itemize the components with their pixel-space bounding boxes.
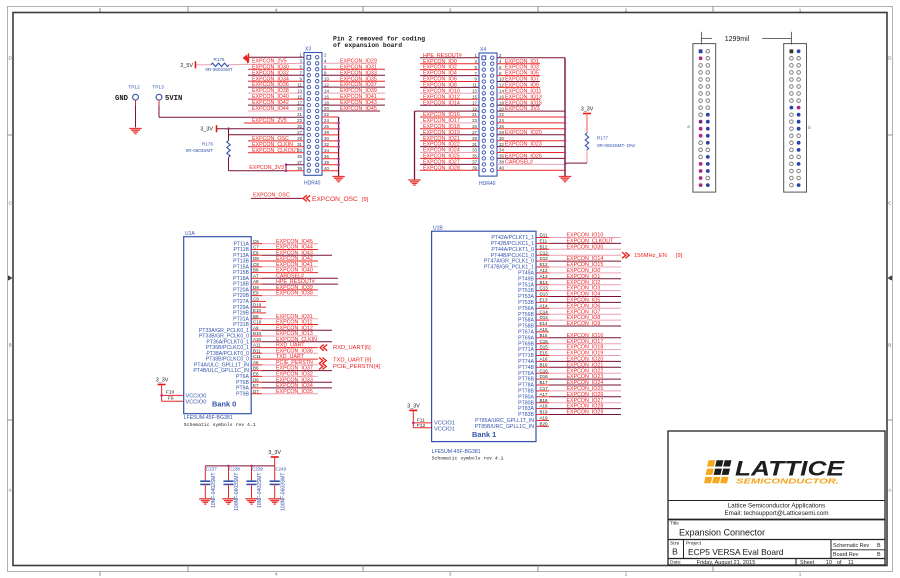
svg-text:32: 32 — [499, 142, 504, 147]
svg-text:A19: A19 — [540, 416, 549, 421]
svg-text:25: 25 — [472, 124, 477, 129]
svg-text:23: 23 — [472, 118, 477, 123]
svg-text:19: 19 — [297, 106, 302, 111]
svg-text:Expansion Connector: Expansion Connector — [679, 527, 765, 537]
svg-text:1: 1 — [799, 572, 802, 577]
svg-text:E8: E8 — [253, 250, 259, 255]
svg-text:18: 18 — [324, 100, 329, 105]
svg-text:3_3V: 3_3V — [581, 107, 594, 113]
svg-text:Board Rev: Board Rev — [833, 552, 859, 558]
svg-text:0R-0603SMT: 0R-0603SMT — [186, 148, 214, 153]
svg-text:22: 22 — [324, 112, 329, 117]
svg-text:3_3V: 3_3V — [200, 127, 213, 133]
svg-text:C240: C240 — [275, 467, 286, 472]
svg-text:3_3V: 3_3V — [407, 404, 420, 410]
svg-text:EXPCON_OSC: EXPCON_OSC — [312, 196, 358, 203]
svg-text:31: 31 — [297, 142, 302, 147]
svg-text:10: 10 — [826, 560, 832, 566]
svg-text:A9: A9 — [253, 325, 259, 330]
svg-text:C15: C15 — [540, 339, 549, 344]
svg-text:100NF-0603SMT: 100NF-0603SMT — [234, 473, 240, 511]
svg-text:D7: D7 — [253, 389, 259, 394]
svg-text:A10: A10 — [253, 337, 262, 342]
svg-text:of expansion board: of expansion board — [333, 42, 402, 49]
svg-text:B: B — [877, 543, 881, 549]
svg-text:28: 28 — [324, 130, 329, 135]
svg-text:B19: B19 — [540, 410, 549, 415]
svg-text:A6: A6 — [253, 360, 259, 365]
svg-text:Schematic symbols rev 4.1: Schematic symbols rev 4.1 — [432, 455, 504, 461]
svg-text:28: 28 — [499, 130, 504, 135]
svg-text:19: 19 — [472, 106, 477, 111]
svg-text:B8: B8 — [253, 268, 259, 273]
svg-text:21: 21 — [472, 112, 477, 117]
svg-text:E10: E10 — [253, 308, 262, 313]
svg-text:A17: A17 — [540, 392, 549, 397]
svg-text:3_3V: 3_3V — [156, 378, 169, 384]
svg-text:Schematic Rev: Schematic Rev — [833, 543, 870, 549]
svg-text:EXPCON_IO9: EXPCON_IO9 — [567, 321, 601, 327]
svg-text:EXPCON_IO28: EXPCON_IO28 — [423, 165, 460, 171]
svg-text:EXPCON_IO20: EXPCON_IO20 — [505, 130, 542, 136]
svg-text:Bank 0: Bank 0 — [212, 400, 236, 409]
svg-text:LATTICE: LATTICE — [735, 457, 845, 480]
svg-text:EXPCON_2V5: EXPCON_2V5 — [252, 118, 287, 124]
svg-text:[6]: [6] — [365, 345, 372, 351]
svg-text:156MHz_EN: 156MHz_EN — [634, 253, 667, 259]
svg-text:Friday, August 21, 2015: Friday, August 21, 2015 — [697, 560, 756, 566]
svg-text:ECP5 VERSA Eval Board: ECP5 VERSA Eval Board — [688, 547, 784, 557]
svg-text:of: of — [837, 560, 842, 566]
svg-text:31: 31 — [472, 142, 477, 147]
svg-text:Title: Title — [670, 521, 679, 527]
svg-text:B16: B16 — [540, 362, 549, 367]
svg-text:U1A: U1A — [185, 231, 195, 237]
svg-text:27: 27 — [472, 130, 477, 135]
svg-text:11: 11 — [848, 560, 854, 566]
svg-text:VCCIO1: VCCIO1 — [434, 427, 455, 433]
svg-text:3: 3 — [449, 572, 452, 577]
svg-text:40: 40 — [499, 166, 504, 171]
svg-text:C10: C10 — [253, 320, 262, 325]
svg-text:B10: B10 — [253, 331, 262, 336]
svg-text:TP13: TP13 — [152, 85, 164, 91]
svg-text:2: 2 — [625, 7, 628, 12]
svg-text:D14: D14 — [540, 315, 549, 320]
svg-text:VCCIO0: VCCIO0 — [186, 399, 207, 405]
svg-text:11: 11 — [472, 83, 477, 88]
svg-text:20: 20 — [324, 106, 329, 111]
svg-text:B11: B11 — [253, 348, 261, 353]
svg-text:B12: B12 — [540, 244, 549, 249]
svg-text:17: 17 — [472, 100, 477, 105]
svg-text:PCIE_PERSTN: PCIE_PERSTN — [333, 364, 373, 370]
svg-text:Sheet: Sheet — [800, 560, 815, 566]
svg-text:EXPCON_IO23: EXPCON_IO23 — [505, 142, 542, 148]
svg-text:12: 12 — [499, 83, 504, 88]
svg-text:5: 5 — [99, 572, 102, 577]
svg-text:30: 30 — [499, 136, 504, 141]
svg-text:B: B — [9, 343, 12, 348]
svg-text:PT85B/URC_GPLL1C_IN: PT85B/URC_GPLL1C_IN — [475, 424, 535, 430]
svg-text:CARDSEL#: CARDSEL# — [505, 160, 533, 166]
svg-text:EXPCON_2V5: EXPCON_2V5 — [252, 58, 287, 64]
svg-text:24: 24 — [499, 118, 504, 123]
svg-text:D9: D9 — [253, 285, 259, 290]
svg-text:24: 24 — [324, 118, 329, 123]
svg-text:X4: X4 — [480, 47, 486, 53]
svg-text:39: 39 — [297, 166, 302, 171]
svg-text:EXPCON_IO45: EXPCON_IO45 — [340, 106, 377, 112]
svg-text:29: 29 — [297, 136, 302, 141]
svg-text:C238: C238 — [229, 467, 240, 472]
svg-text:Email: techsupport@Latticesemi: Email: techsupport@Latticesemi.com — [724, 510, 828, 517]
svg-text:36: 36 — [499, 154, 504, 159]
svg-text:F10: F10 — [166, 390, 175, 396]
svg-text:A12: A12 — [540, 268, 549, 273]
svg-text:13: 13 — [297, 88, 302, 93]
svg-text:14: 14 — [499, 89, 504, 94]
svg-text:15: 15 — [297, 94, 302, 99]
svg-text:10: 10 — [499, 77, 504, 82]
svg-text:20: 20 — [499, 106, 504, 111]
svg-text:Bank 1: Bank 1 — [472, 430, 496, 439]
svg-text:D12: D12 — [540, 256, 549, 261]
svg-text:A11: A11 — [253, 343, 261, 348]
svg-text:C9: C9 — [253, 297, 259, 302]
svg-text:12: 12 — [324, 82, 329, 87]
svg-text:LFE5UM-45F-BG381: LFE5UM-45F-BG381 — [432, 449, 481, 455]
svg-text:[9]: [9] — [676, 253, 683, 259]
svg-text:EXPCON_3V3: EXPCON_3V3 — [505, 106, 540, 112]
svg-text:[9]: [9] — [362, 197, 369, 203]
svg-text:32: 32 — [324, 142, 329, 147]
svg-text:HDR40: HDR40 — [479, 181, 496, 187]
svg-text:2_5V: 2_5V — [180, 63, 193, 69]
svg-text:E9: E9 — [253, 291, 259, 296]
svg-text:5VIN: 5VIN — [165, 95, 182, 103]
svg-text:38: 38 — [324, 160, 329, 165]
svg-text:40: 40 — [324, 166, 329, 171]
svg-text:F12: F12 — [417, 423, 426, 429]
svg-text:A13: A13 — [540, 274, 549, 279]
svg-text:C14: C14 — [540, 309, 549, 314]
svg-text:B: B — [888, 343, 891, 348]
svg-text:F9: F9 — [168, 396, 174, 402]
svg-text:C13: C13 — [540, 286, 549, 291]
svg-text:100NF-0603SMT: 100NF-0603SMT — [280, 473, 286, 511]
svg-text:38: 38 — [499, 160, 504, 165]
svg-text:D8: D8 — [253, 256, 259, 261]
svg-text:16: 16 — [499, 94, 504, 99]
svg-text:D11: D11 — [540, 233, 548, 238]
svg-text:EXPCON_OSC: EXPCON_OSC — [253, 192, 290, 198]
svg-text:11: 11 — [297, 82, 302, 87]
svg-text:B9: B9 — [253, 314, 259, 319]
svg-text:EXPCON_IO38: EXPCON_IO38 — [276, 291, 313, 297]
svg-text:B6: B6 — [253, 366, 259, 371]
svg-text:B13: B13 — [540, 280, 549, 285]
svg-text:RXD_UART: RXD_UART — [333, 345, 365, 351]
svg-text:EXPCON_3V3: EXPCON_3V3 — [249, 165, 284, 171]
svg-text:SEMICONDUCTOR.: SEMICONDUCTOR. — [736, 478, 839, 485]
svg-text:A8: A8 — [253, 279, 259, 284]
svg-text:EXPCON_CLKOUT: EXPCON_CLKOUT — [252, 148, 300, 154]
svg-text:22: 22 — [499, 112, 504, 117]
svg-text:10NF-0402SMT: 10NF-0402SMT — [257, 473, 263, 509]
svg-text:E15: E15 — [540, 351, 549, 356]
svg-text:5: 5 — [99, 7, 102, 12]
svg-text:18: 18 — [499, 100, 504, 105]
svg-text:HDR40: HDR40 — [304, 180, 321, 186]
svg-text:EXPCON_IO29: EXPCON_IO29 — [567, 410, 604, 416]
svg-text:3: 3 — [449, 7, 452, 12]
svg-text:E11: E11 — [540, 239, 548, 244]
svg-text:26: 26 — [324, 124, 329, 129]
svg-text:B: B — [877, 552, 881, 558]
svg-text:36: 36 — [324, 154, 329, 159]
svg-text:30: 30 — [324, 136, 329, 141]
svg-text:GND: GND — [115, 95, 129, 103]
svg-text:C17: C17 — [540, 386, 549, 391]
svg-text:4: 4 — [275, 572, 278, 577]
svg-text:Project: Project — [686, 540, 702, 546]
svg-text:C237: C237 — [206, 467, 217, 472]
svg-text:34: 34 — [324, 148, 329, 153]
svg-text:B15: B15 — [540, 333, 549, 338]
svg-text:15: 15 — [472, 94, 477, 99]
svg-text:[4]: [4] — [374, 364, 381, 370]
svg-text:C239: C239 — [252, 467, 263, 472]
svg-text:D15: D15 — [540, 345, 549, 350]
svg-text:R176: R176 — [202, 141, 213, 146]
svg-text:R177: R177 — [597, 136, 608, 141]
svg-text:13: 13 — [472, 89, 477, 94]
svg-text:E13: E13 — [540, 298, 549, 303]
svg-text:TP12: TP12 — [128, 85, 140, 91]
svg-text:EXPCON_IO30: EXPCON_IO30 — [567, 244, 604, 250]
svg-text:D10: D10 — [253, 302, 262, 307]
svg-text:TXD_UART: TXD_UART — [333, 358, 364, 364]
svg-text:0R-0603SMT: 0R-0603SMT — [205, 67, 233, 72]
svg-text:B18: B18 — [540, 398, 549, 403]
svg-text:D16: D16 — [540, 374, 549, 379]
svg-text:PT9B: PT9B — [236, 391, 250, 397]
svg-text:B: B — [672, 546, 678, 556]
svg-text:C11: C11 — [253, 354, 261, 359]
svg-text:EXPCON_IO35: EXPCON_IO35 — [276, 389, 313, 395]
svg-text:F11: F11 — [417, 418, 425, 424]
svg-text:B20: B20 — [540, 421, 549, 426]
svg-text:C7: C7 — [253, 245, 259, 250]
svg-text:4: 4 — [275, 7, 278, 12]
svg-text:26: 26 — [499, 124, 504, 129]
svg-text:37: 37 — [472, 160, 477, 165]
svg-text:3_3V: 3_3V — [268, 450, 281, 456]
svg-text:C8: C8 — [253, 262, 259, 267]
svg-text:Date:: Date: — [670, 560, 681, 566]
svg-text:14: 14 — [324, 88, 329, 93]
svg-text:10: 10 — [324, 76, 329, 81]
svg-text:1: 1 — [799, 7, 802, 12]
svg-text:C6: C6 — [253, 239, 259, 244]
svg-text:EXPCON_IO14: EXPCON_IO14 — [423, 100, 460, 106]
svg-text:29: 29 — [472, 136, 477, 141]
svg-text:35: 35 — [472, 154, 477, 159]
svg-text:0R-0603SMT- DNI: 0R-0603SMT- DNI — [597, 143, 635, 148]
svg-text:D13: D13 — [540, 292, 549, 297]
svg-text:16: 16 — [324, 94, 329, 99]
svg-text:E12: E12 — [540, 262, 549, 267]
svg-text:LFE5UM-45F-BG381: LFE5UM-45F-BG381 — [184, 415, 233, 421]
svg-text:A18: A18 — [540, 404, 549, 409]
svg-text:B17: B17 — [540, 380, 549, 385]
svg-text:U1B: U1B — [433, 225, 443, 231]
svg-text:E6: E6 — [253, 372, 259, 377]
svg-text:39: 39 — [472, 166, 477, 171]
svg-text:A14: A14 — [540, 303, 549, 308]
svg-text:10NF-0402SMT: 10NF-0402SMT — [211, 473, 217, 509]
svg-text:A16: A16 — [540, 357, 549, 362]
svg-text:35: 35 — [297, 154, 302, 159]
svg-text:C12: C12 — [540, 250, 549, 255]
svg-text:X3: X3 — [305, 47, 311, 53]
svg-text:Schematic symbols rev 4.1: Schematic symbols rev 4.1 — [184, 422, 256, 428]
svg-text:C16: C16 — [540, 368, 549, 373]
svg-text:A15: A15 — [540, 327, 549, 332]
svg-text:R175: R175 — [214, 57, 225, 62]
svg-text:2: 2 — [625, 572, 628, 577]
svg-text:Lattice Semiconductor Applicat: Lattice Semiconductor Applications — [728, 502, 826, 509]
svg-text:17: 17 — [297, 100, 302, 105]
svg-text:E7: E7 — [253, 383, 259, 388]
svg-text:[9]: [9] — [365, 358, 372, 364]
svg-text:23: 23 — [297, 118, 302, 123]
svg-text:A7: A7 — [253, 273, 259, 278]
svg-text:D6: D6 — [253, 377, 259, 382]
svg-text:E14: E14 — [540, 321, 549, 326]
svg-text:EXPCON_IO44: EXPCON_IO44 — [252, 106, 289, 112]
svg-text:21: 21 — [297, 112, 302, 117]
svg-text:1299mil: 1299mil — [725, 36, 750, 43]
svg-text:33: 33 — [472, 148, 477, 153]
svg-text:34: 34 — [499, 148, 504, 153]
